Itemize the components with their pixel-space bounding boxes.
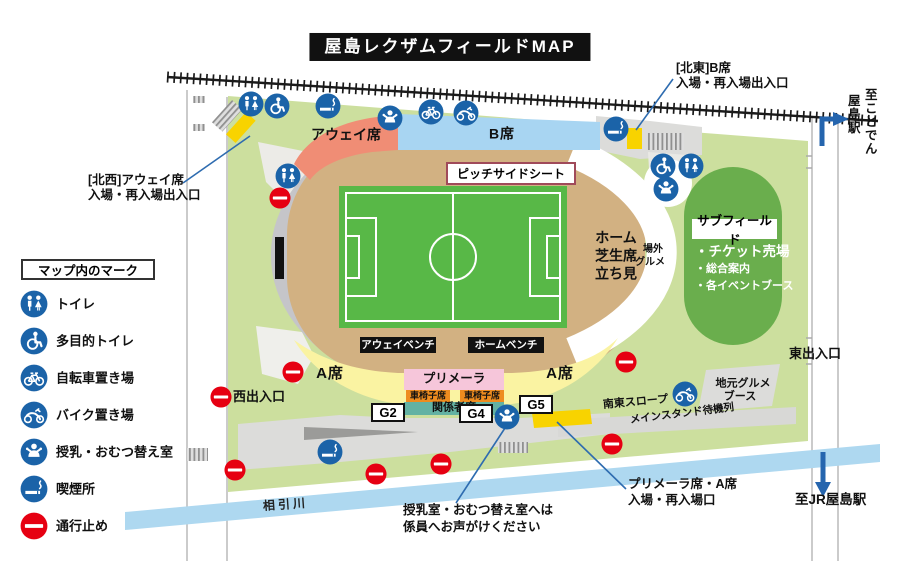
primera-gate-label-line1: プリメーラ席・A席 xyxy=(628,477,737,492)
ne-entrance-gate xyxy=(627,128,642,149)
gate-g2: G2 xyxy=(371,403,405,422)
to-kotoden-label-2: 屋島駅 xyxy=(845,94,860,135)
nursing-room-icon xyxy=(378,106,403,131)
nw-gate-label-line2: 入場・再入場出入口 xyxy=(88,188,201,203)
road-closed-icon xyxy=(601,433,622,454)
gate-g5: G5 xyxy=(519,395,553,414)
west-exit-label: 西出入口 xyxy=(233,389,285,404)
nursing-room-icon xyxy=(654,177,679,202)
pitch-side-seat-box: ピッチサイドシート xyxy=(446,162,576,185)
local-gourmet-line2: ブース xyxy=(724,391,756,404)
road-closed-icon xyxy=(430,453,451,474)
toilet-icon xyxy=(679,154,704,179)
to-kotoden-label-1: 至ことでん xyxy=(862,88,877,156)
left-road xyxy=(187,90,227,561)
subfield-item-2: ・総合案内 xyxy=(695,263,750,276)
subfield-item-1: ・チケット売場 xyxy=(695,244,790,260)
primera-gate-label-line2: 入場・再入場口 xyxy=(628,493,716,508)
legend-item-label-bicycle-parking: 自転車置き場 xyxy=(56,370,134,385)
road-closed-icon xyxy=(365,463,386,484)
legend-header: マップ内のマーク xyxy=(21,259,155,280)
wheelchair-seats-right-label: 車椅子席 xyxy=(464,391,500,402)
road-closed-icon xyxy=(269,187,290,208)
yashima-field-map: 屋島レクザムフィールドMAP マップ内のマーク トイレ 多目的トイレ 自転車置き… xyxy=(0,0,900,561)
legend-item-label-road-closed: 通行止め xyxy=(56,518,108,533)
page-title: 屋島レクザムフィールドMAP xyxy=(309,33,590,61)
to-jr-label: 至JR屋島駅 xyxy=(795,492,866,508)
away-bench-label: アウェイベンチ xyxy=(361,339,435,351)
road-closed-icon xyxy=(615,351,636,372)
local-gourmet-line1: 地元グルメ xyxy=(716,378,771,391)
b-seats-label: B席 xyxy=(489,126,515,143)
gate-g4: G4 xyxy=(459,404,493,423)
a-seats-left-label: A席 xyxy=(316,365,344,383)
ne-gate-label-line2: 入場・再入場出入口 xyxy=(676,76,789,91)
smoking-area-icon xyxy=(604,117,629,142)
ne-stairs xyxy=(648,133,684,150)
sw-stairs xyxy=(186,448,208,461)
a-seats-right-label: A席 xyxy=(546,365,574,383)
accessible-toilet-icon xyxy=(21,328,48,355)
home-lawn-line3: 立ち見 xyxy=(595,266,637,283)
road-closed-icon xyxy=(282,361,303,382)
legend-item-label-nursing-room: 授乳・おむつ替え室 xyxy=(56,444,173,459)
nursing-note-line2: 係員へお声がけください xyxy=(403,520,541,535)
legend-item-label-motorcycle-parking: バイク置き場 xyxy=(56,407,134,422)
away-seats-label: アウェイ席 xyxy=(311,127,381,144)
smoking-area-icon xyxy=(318,440,343,465)
home-lawn-line2: 芝生席 xyxy=(595,248,637,265)
east-exit-label: 東出入口 xyxy=(789,346,841,361)
bicycle-parking-icon xyxy=(21,365,48,392)
home-bench-label: ホームベンチ xyxy=(475,339,538,351)
road-closed-icon xyxy=(21,513,48,540)
accessible-toilet-icon xyxy=(651,154,676,179)
nursing-room-icon xyxy=(21,439,48,466)
outside-gourmet-line1: 場外 xyxy=(643,244,663,256)
subfield-item-3: ・各イベントブース xyxy=(695,280,793,293)
bicycle-parking-icon xyxy=(419,100,444,125)
road-closed-icon xyxy=(224,459,245,480)
south-stairs xyxy=(498,442,528,453)
motorcycle-parking-icon xyxy=(454,101,479,126)
crossing-marks-2 xyxy=(193,124,205,131)
primera-label: プリメーラ xyxy=(423,372,486,387)
nursing-room-icon xyxy=(495,405,520,430)
wheelchair-seats-left-label: 車椅子席 xyxy=(410,391,446,402)
home-lawn-line1: ホーム xyxy=(595,230,637,247)
crossing-marks-1 xyxy=(193,96,205,103)
outside-gourmet-line2: グルメ xyxy=(635,257,665,269)
subfield-title: サブフィールド xyxy=(692,219,777,239)
ne-gate-label-line1: [北東]B席 xyxy=(676,61,731,76)
motorcycle-parking-icon xyxy=(21,402,48,429)
accessible-toilet-icon xyxy=(265,94,290,119)
road-closed-icon xyxy=(210,386,231,407)
nursing-note-line1: 授乳室・おむつ替え室へは xyxy=(403,503,553,518)
nw-gate-label-line1: [北西]アウェイ席 xyxy=(88,173,184,188)
scoreboard xyxy=(275,237,284,279)
smoking-area-icon xyxy=(21,476,48,503)
toilet-icon xyxy=(21,291,48,318)
motorcycle-parking-icon xyxy=(673,382,698,407)
legend-item-label-accessible-toilet: 多目的トイレ xyxy=(56,333,134,348)
toilet-icon xyxy=(239,92,264,117)
smoking-area-icon xyxy=(316,94,341,119)
legend-item-label-smoking-area: 喫煙所 xyxy=(56,481,95,496)
toilet-icon xyxy=(276,164,301,189)
legend-item-label-toilet: トイレ xyxy=(56,296,95,311)
